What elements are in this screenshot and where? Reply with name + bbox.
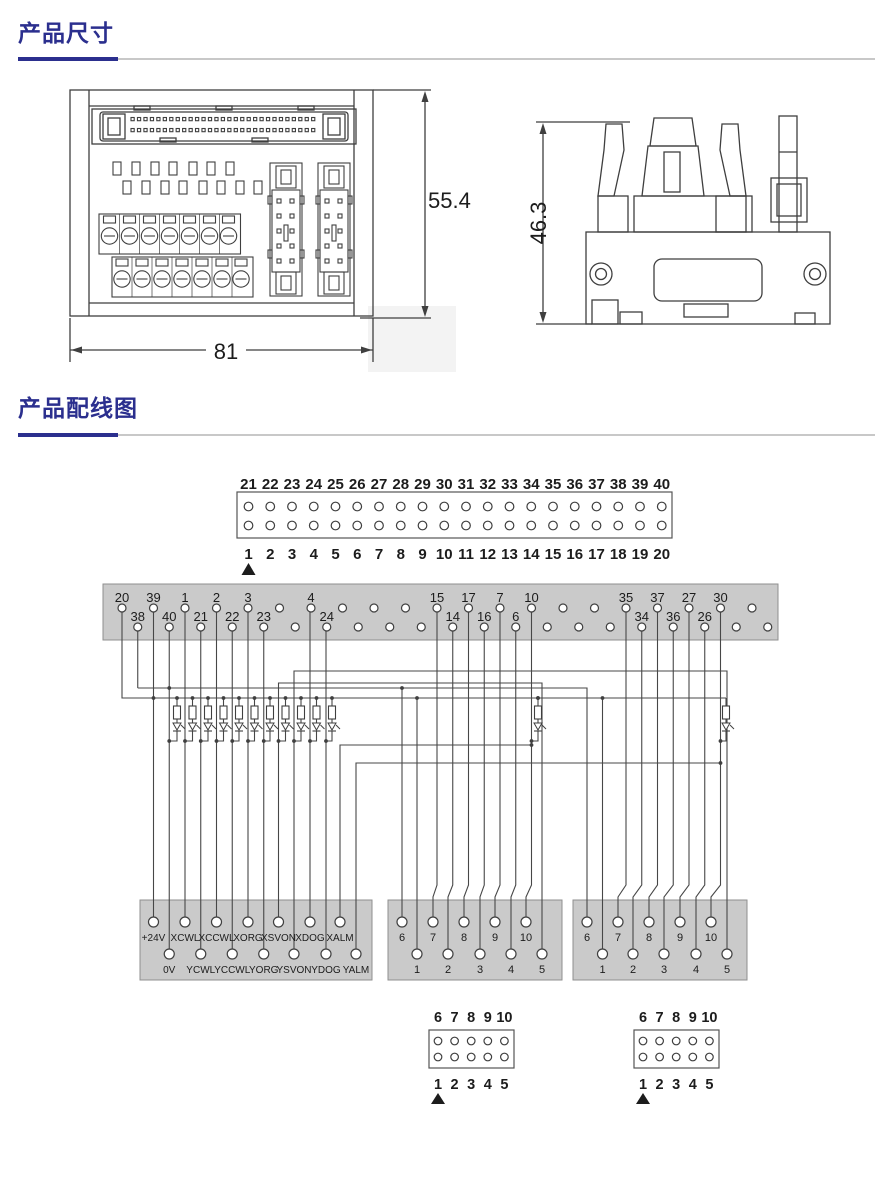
idc-pin (290, 259, 294, 263)
header-pin (279, 118, 282, 121)
idc-pin (338, 229, 342, 233)
bar-pin-label-bottom: 14 (446, 609, 460, 624)
led-window (207, 162, 215, 175)
pin-hole (598, 949, 608, 959)
conn40-top-number: 40 (653, 476, 670, 493)
header-pin (131, 118, 134, 121)
led-window (132, 162, 140, 175)
conn40-bottom-number: 13 (501, 546, 518, 563)
conn40-top-number: 30 (436, 476, 453, 493)
arrow-up-icon (422, 91, 429, 102)
header-pin (234, 129, 237, 132)
header-pin (215, 129, 218, 132)
idc-pin (325, 214, 329, 218)
pin-hole (165, 623, 173, 631)
conn40-bottom-number: 18 (610, 546, 627, 563)
wiring-lines (122, 612, 727, 949)
led-icon (173, 723, 181, 730)
header-pin (247, 118, 250, 121)
terminal-clamp (184, 216, 196, 223)
pin-hole (490, 917, 500, 927)
pin-hole (722, 949, 732, 959)
block-terminal-label: 5 (539, 964, 545, 976)
pin-hole (484, 1053, 492, 1061)
terminal-clamp (156, 259, 168, 266)
pin-hole (309, 521, 318, 530)
pin-hole (614, 502, 623, 511)
header-pin (183, 129, 186, 132)
terminal-clamp (196, 259, 208, 266)
pin-hole (467, 1053, 475, 1061)
pin-hole (732, 623, 740, 631)
led-windows (113, 162, 262, 194)
bar-pin-label-bottom: 23 (257, 609, 271, 624)
idc-pin (338, 214, 342, 218)
pin-hole (440, 502, 449, 511)
header-pin (189, 129, 192, 132)
block-terminal-label: 9 (492, 932, 498, 944)
pin-hole (386, 623, 394, 631)
header-pin (266, 118, 269, 121)
junction-dot (601, 696, 605, 700)
conn40-bottom-number: 16 (566, 546, 583, 563)
bottom-connector-right: 61728394105 (634, 1010, 719, 1104)
header-pin (299, 129, 302, 132)
pin-hole (506, 949, 516, 959)
conn40-bottom-number: 1 (244, 546, 252, 563)
junction-dot (253, 696, 257, 700)
header-pin (183, 118, 186, 121)
junction-dot (536, 696, 540, 700)
conn40-top-number: 28 (392, 476, 409, 493)
bar-pin-label-bottom: 26 (698, 609, 712, 624)
led-ray-icon (336, 725, 340, 729)
pin-hole (691, 949, 701, 959)
header-pin (234, 118, 237, 121)
header-pin (150, 129, 153, 132)
header-pin (157, 129, 160, 132)
junction-dot (183, 739, 187, 743)
terminal-clamp (104, 216, 116, 223)
junction-dot (268, 696, 272, 700)
pin-hole (628, 949, 638, 959)
conn40-bottom-number: 11 (458, 546, 474, 563)
pin-hole (451, 1053, 459, 1061)
pin-hole (213, 604, 221, 612)
bar-pin-label-top: 15 (430, 590, 444, 605)
led-window (142, 181, 150, 194)
bottom-connector-top-number: 8 (672, 1010, 680, 1026)
header-pin (266, 129, 269, 132)
terminal-clamp (116, 259, 128, 266)
conn40-bottom-number: 7 (375, 546, 383, 563)
pin-hole (521, 917, 531, 927)
junction-dot (530, 739, 534, 743)
pin-hole (675, 917, 685, 927)
conn40-bottom-number: 9 (418, 546, 426, 563)
led-window (189, 162, 197, 175)
pin-hole (483, 502, 492, 511)
led-ray-icon (197, 725, 201, 729)
led-indicator-circuits (169, 698, 734, 741)
junction-dot (315, 696, 319, 700)
wiring-diagram: 2039123415177103537273038402122232414166… (0, 460, 891, 1120)
block-terminal-label: XSVON (261, 933, 296, 944)
header-pin (299, 118, 302, 121)
pin-hole (639, 1037, 647, 1045)
header-pin (163, 129, 166, 132)
led-icon (534, 723, 542, 730)
idc-pin (338, 244, 342, 248)
pin-hole (484, 1037, 492, 1045)
conn40-bottom-number: 15 (545, 546, 562, 563)
bar-pin-label-top: 10 (524, 590, 538, 605)
header-pin (170, 118, 173, 121)
pin-hole (701, 623, 709, 631)
led-window (217, 181, 225, 194)
header-pin (170, 129, 173, 132)
power-rails (122, 612, 726, 949)
header-pin (273, 129, 276, 132)
pin-hole (244, 502, 253, 511)
idc-pin (277, 214, 281, 218)
pin-hole (433, 604, 441, 612)
idc-connectors (268, 163, 352, 296)
pin-hole (505, 502, 514, 511)
pin-hole (451, 1037, 459, 1045)
pin-hole (434, 1037, 442, 1045)
block-terminal-label: XALM (326, 933, 353, 944)
side-view (586, 116, 830, 324)
led-window (151, 162, 159, 175)
idc-pin (325, 229, 329, 233)
pin-hole (501, 1053, 509, 1061)
pin-hole (428, 917, 438, 927)
arrow-down-icon (540, 312, 547, 323)
block-terminal-label: 10 (520, 932, 532, 944)
pin-hole (440, 521, 449, 530)
led-icon (220, 723, 228, 730)
led-icon (282, 723, 290, 730)
pin-hole (397, 917, 407, 927)
arrow-up-icon (540, 123, 547, 134)
header-feed-wires (433, 612, 721, 949)
junction-dot (719, 739, 723, 743)
block-terminal-label: 5 (724, 964, 730, 976)
terminal-clamp (216, 259, 228, 266)
block-terminal-label: 6 (584, 932, 590, 944)
pin-hole (591, 604, 599, 612)
pin-hole (459, 917, 469, 927)
pin-hole (549, 521, 558, 530)
pin-hole (323, 623, 331, 631)
conn40-top-number: 34 (523, 476, 540, 493)
pin-hole (351, 949, 361, 959)
pin-hole (706, 1053, 714, 1061)
header-pin (137, 118, 140, 121)
front-view (70, 90, 373, 316)
conn40-top-number: 25 (327, 476, 344, 493)
block-terminal-label: YSVON (276, 965, 311, 976)
pin-hole (212, 917, 222, 927)
block-terminal-label: 10 (705, 932, 717, 944)
bar-pin-label-bottom: 16 (477, 609, 491, 624)
led-window (254, 181, 262, 194)
product-page: 产品尺寸 (0, 0, 891, 1186)
pin-hole (196, 949, 206, 959)
pin-hole (685, 604, 693, 612)
pin-hole (549, 502, 558, 511)
led-icon (189, 723, 197, 730)
bar-pin-label-top: 7 (496, 590, 503, 605)
bar-pin-label-top: 37 (650, 590, 664, 605)
pin-hole (706, 917, 716, 927)
pin-hole (659, 949, 669, 959)
header-pin (228, 118, 231, 121)
pin-hole (528, 604, 536, 612)
bottom-connector-top-number: 6 (639, 1010, 647, 1026)
pin-hole (462, 521, 471, 530)
header-pin (221, 129, 224, 132)
dim-label-height: 55.4 (428, 188, 471, 213)
bar-pin-label-bottom: 36 (666, 609, 680, 624)
pin-hole (266, 502, 275, 511)
pin-hole (465, 604, 473, 612)
conn40-top-number: 31 (458, 476, 475, 493)
pin-hole (496, 604, 504, 612)
pin-hole (331, 502, 340, 511)
bar-pin-label-bottom: 24 (320, 609, 334, 624)
pin-hole (150, 604, 158, 612)
pin-hole (527, 502, 536, 511)
led-window (169, 162, 177, 175)
led-icon (204, 723, 212, 730)
pin-hole (375, 521, 384, 530)
led-ray-icon (212, 725, 216, 729)
conn40-bottom-number: 3 (288, 546, 296, 563)
led-window (236, 181, 244, 194)
dim-label-side-height: 46.3 (526, 202, 551, 245)
header-pin (208, 118, 211, 121)
junction-dot (167, 686, 171, 690)
block-terminal-label: 8 (646, 932, 652, 944)
pin-hole (644, 917, 654, 927)
bar-pin-label-top: 2 (213, 590, 220, 605)
watermark-patch (368, 306, 456, 372)
bottom-connector-bottom-number: 2 (451, 1077, 459, 1093)
pin-hole (370, 604, 378, 612)
title-underline-accent (18, 433, 118, 437)
terminal-clamp (176, 259, 188, 266)
block-terminal-label: 1 (414, 964, 420, 976)
conn40-top-number: 22 (262, 476, 279, 493)
pin1-marker-icon (242, 563, 256, 575)
resistor-icon (313, 706, 320, 719)
conn40-top-number: 38 (610, 476, 627, 493)
led-ray-icon (259, 725, 263, 729)
section-title-dimensions: 产品尺寸 (18, 14, 114, 48)
pin-hole (592, 521, 601, 530)
block-terminal-label: 4 (508, 964, 514, 976)
led-window (161, 181, 169, 194)
pin-hole (331, 521, 340, 530)
pin-hole (462, 502, 471, 511)
pin-hole (197, 623, 205, 631)
pin-hole (274, 917, 284, 927)
pin-hole (244, 604, 252, 612)
pin-hole (228, 623, 236, 631)
junction-dot (330, 696, 334, 700)
bar-pin-label-top: 30 (713, 590, 727, 605)
pin-hole (669, 623, 677, 631)
header-pin (247, 129, 250, 132)
pin-hole (622, 604, 630, 612)
header-connector-40p (92, 106, 356, 144)
pin-hole (396, 521, 405, 530)
header-pin (137, 129, 140, 132)
header-pin (208, 129, 211, 132)
pin-hole (396, 502, 405, 511)
bar-pin-label-bottom: 21 (194, 609, 208, 624)
led-window (123, 181, 131, 194)
pin-hole (672, 1037, 680, 1045)
bar-pin-label-top: 35 (619, 590, 633, 605)
header-pin (189, 118, 192, 121)
idc-pin (290, 214, 294, 218)
led-icon (251, 723, 259, 730)
idc-pin (277, 199, 281, 203)
idc-pin (290, 199, 294, 203)
bottom-connector-top-number: 10 (701, 1010, 717, 1026)
header-pin (144, 118, 147, 121)
pin-hole (505, 521, 514, 530)
block-terminal-label: 3 (477, 964, 483, 976)
bottom-connector-bottom-number: 3 (467, 1077, 475, 1093)
bottom-connector-bottom-number: 3 (672, 1077, 680, 1093)
conn40-top-number: 32 (479, 476, 496, 493)
resistor-icon (220, 706, 227, 719)
header-pin (312, 129, 315, 132)
pin-hole (570, 502, 579, 511)
junction-dot (292, 739, 296, 743)
junction-dot (152, 696, 156, 700)
block-terminal-label: 8 (461, 932, 467, 944)
pin-hole (243, 917, 253, 927)
pin-hole (582, 917, 592, 927)
pin-hole (164, 949, 174, 959)
bottom-connector-top-number: 8 (467, 1010, 475, 1026)
led-ray-icon (290, 725, 294, 729)
header-pin (260, 118, 263, 121)
block-terminal-label: 7 (430, 932, 436, 944)
junction-dot (284, 696, 288, 700)
pin-hole (467, 1037, 475, 1045)
left-signal-wires (185, 612, 326, 949)
pin-hole (434, 1053, 442, 1061)
idc-pin (325, 244, 329, 248)
bottom-connector-top-number: 7 (451, 1010, 459, 1026)
pin-hole (706, 1037, 714, 1045)
junction-dot (530, 743, 534, 747)
led-ray-icon (542, 725, 546, 729)
pin-hole (606, 623, 614, 631)
junction-dot (308, 739, 312, 743)
conn40-bottom-number: 8 (397, 546, 405, 563)
header-pin (196, 129, 199, 132)
resistor-icon (236, 706, 243, 719)
junction-dot (167, 739, 171, 743)
bottom-connector-bottom-number: 1 (639, 1077, 647, 1093)
header-pin (279, 129, 282, 132)
led-window (199, 181, 207, 194)
pin-hole (289, 949, 299, 959)
bottom-connector-top-number: 10 (496, 1010, 512, 1026)
block-terminal-label: 6 (399, 932, 405, 944)
dim-label-width: 81 (214, 339, 238, 364)
block-terminal-label: 1 (599, 964, 605, 976)
idc-pin (325, 259, 329, 263)
junction-dot (199, 739, 203, 743)
dimension-drawing: 55.4 81 (0, 70, 891, 390)
pin-hole (259, 949, 269, 959)
header-pin (312, 118, 315, 121)
block-terminal-label: YCCWL (214, 965, 251, 976)
pin-hole (501, 1037, 509, 1045)
block-terminal-label: 0V (163, 965, 176, 976)
led-ray-icon (321, 725, 325, 729)
pin-hole (689, 1053, 697, 1061)
resistor-icon (251, 706, 258, 719)
bottom-connector-bottom-number: 5 (500, 1077, 508, 1093)
pin-hole (613, 917, 623, 927)
pin-hole (412, 949, 422, 959)
terminal-clamp (144, 216, 156, 223)
led-icon (313, 723, 321, 730)
pin-hole (309, 502, 318, 511)
conn40-bottom-number: 5 (331, 546, 339, 563)
pin-hole (134, 623, 142, 631)
junction-dot (206, 696, 210, 700)
idc-pin (325, 199, 329, 203)
block-terminal-label: XORG (233, 933, 263, 944)
led-icon (722, 723, 730, 730)
block-terminal-label: +24V (142, 933, 166, 944)
pin-hole (417, 623, 425, 631)
idc-pin (290, 244, 294, 248)
pin-hole (244, 521, 253, 530)
resistor-icon (298, 706, 305, 719)
idc-pin (277, 259, 281, 263)
bottom-connector-top-number: 9 (484, 1010, 492, 1026)
bar-pin-label-top: 4 (307, 590, 314, 605)
bar-pin-label-top: 39 (146, 590, 160, 605)
header-pin (176, 118, 179, 121)
junction-dot (237, 696, 241, 700)
bottom-connector-bottom-number: 4 (689, 1077, 697, 1093)
pin-hole (276, 604, 284, 612)
terminal-clamp (235, 259, 247, 266)
junction-dot (222, 696, 226, 700)
pin-hole (543, 623, 551, 631)
led-ray-icon (228, 725, 232, 729)
conn40-top-number: 27 (371, 476, 388, 493)
pin-hole (181, 604, 189, 612)
pin-hole (717, 604, 725, 612)
conn40-top-number: 29 (414, 476, 431, 493)
pin-hole (614, 521, 623, 530)
bottom-connector-bottom-number: 4 (484, 1077, 492, 1093)
block-terminal-label: YALM (343, 965, 370, 976)
